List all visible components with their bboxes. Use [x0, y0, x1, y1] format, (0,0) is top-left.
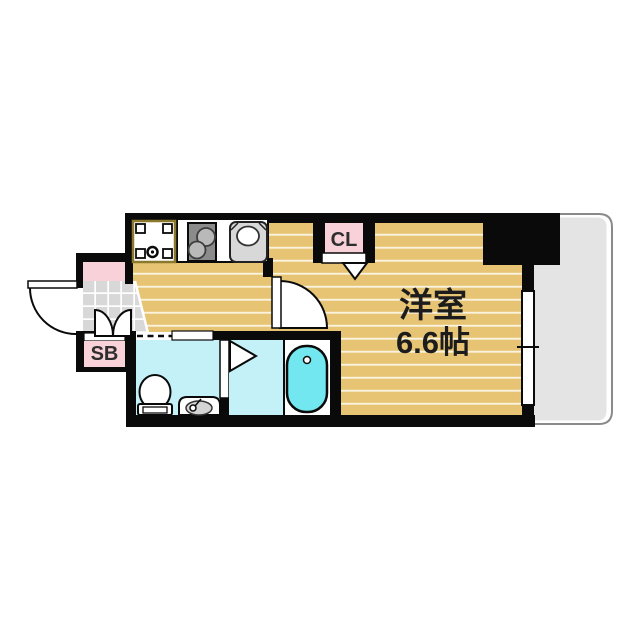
toilet-icon	[138, 375, 172, 415]
wall-entrance-top	[76, 253, 125, 262]
front-door-swing-arc	[30, 288, 76, 334]
vanity-sink-icon	[179, 397, 220, 415]
divider-wall	[220, 398, 229, 415]
stove-icon	[188, 223, 216, 261]
wall-bathblock-top	[213, 331, 341, 340]
shoe-box: SB	[76, 331, 133, 372]
wall-bottom	[126, 415, 535, 427]
room-door-leaf	[272, 277, 281, 328]
floor-plan: CL SB	[0, 0, 640, 640]
washer-pan-icon	[133, 221, 175, 262]
divider-door	[220, 340, 229, 398]
front-door	[28, 281, 77, 334]
closet-door-panel	[322, 253, 366, 263]
closet-label: CL	[331, 229, 358, 251]
wall-bathblock-right	[330, 331, 341, 415]
shoe-box-label: SB	[91, 343, 119, 365]
front-door-leaf	[28, 281, 77, 288]
toilet-bath-divider	[220, 340, 229, 415]
bathtub-icon	[287, 346, 327, 412]
main-room-label: 洋室	[399, 286, 467, 325]
kitchen	[133, 219, 268, 262]
sink-icon	[230, 222, 267, 262]
entrance-hall-strip	[83, 262, 127, 281]
main-room-size-label: 6.6帖	[396, 325, 470, 360]
toilet-room-door-panel	[172, 331, 213, 340]
toilet-room	[136, 331, 220, 415]
wall-right-upper	[522, 265, 534, 291]
bathroom	[229, 340, 330, 415]
floor-plan-drawing: CL SB	[0, 0, 640, 640]
wall-pillar-top-right	[483, 213, 560, 265]
